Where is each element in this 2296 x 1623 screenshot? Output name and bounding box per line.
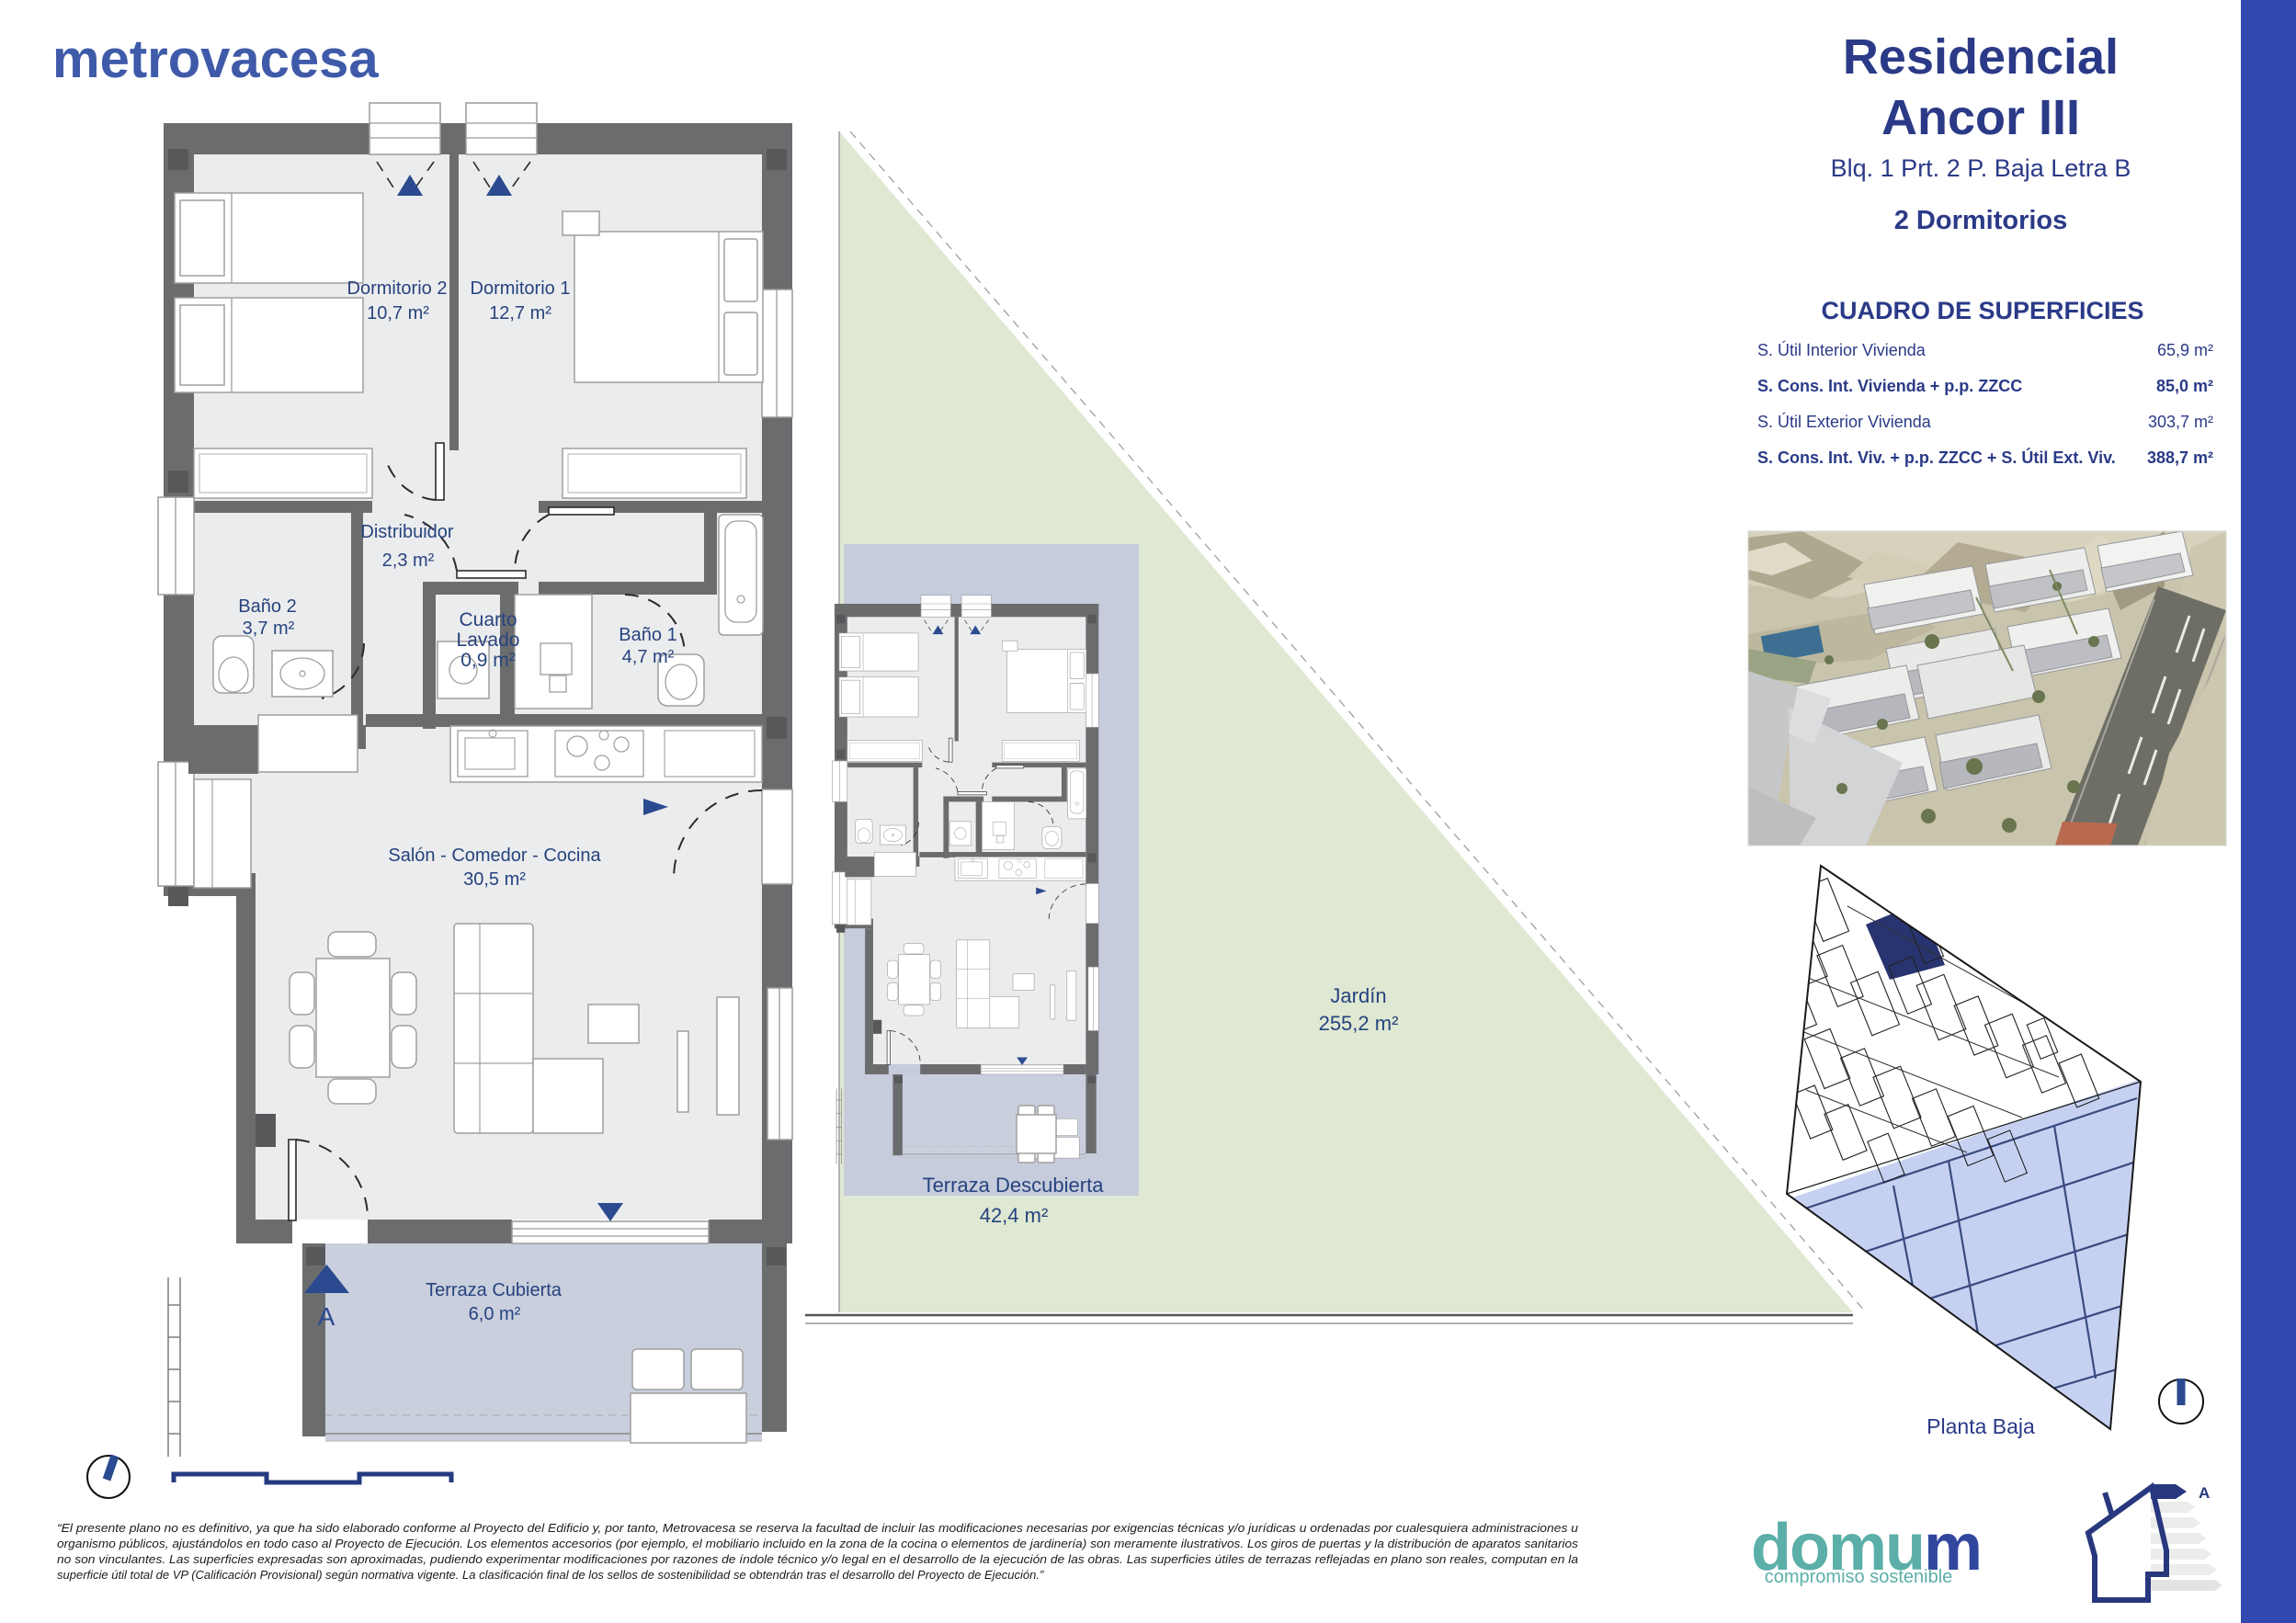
svg-text:A: A	[318, 1302, 335, 1331]
svg-text:Ancor III: Ancor III	[1881, 90, 2080, 145]
svg-text:Distribuidor: Distribuidor	[360, 522, 453, 542]
svg-text:organismo públicos, ajustándol: organismo públicos, ajustándolos en todo…	[57, 1537, 1579, 1550]
svg-text:30,5 m²: 30,5 m²	[463, 869, 526, 890]
svg-text:Terraza Descubierta: Terraza Descubierta	[923, 1174, 1105, 1197]
svg-text:no son vinculantes. Las superf: no son vinculantes. Las superficies expr…	[57, 1552, 1578, 1566]
svg-text:4,7 m²: 4,7 m²	[622, 647, 675, 667]
svg-text:255,2 m²: 255,2 m²	[1319, 1012, 1399, 1035]
svg-text:65,9 m²: 65,9 m²	[2157, 341, 2213, 359]
svg-text:303,7 m²: 303,7 m²	[2148, 413, 2213, 431]
svg-text:Cuarto: Cuarto	[459, 609, 517, 630]
svg-text:compromiso sostenible: compromiso sostenible	[1765, 1567, 1953, 1587]
svg-text:Salón - Comedor - Cocina: Salón - Comedor - Cocina	[388, 846, 601, 866]
svg-text:388,7 m²: 388,7 m²	[2147, 448, 2213, 467]
svg-text:S. Útil Exterior Vivienda: S. Útil Exterior Vivienda	[1757, 412, 1932, 431]
svg-text:2 Dormitorios: 2 Dormitorios	[1894, 206, 2068, 235]
svg-text:CUADRO DE SUPERFICIES: CUADRO DE SUPERFICIES	[1821, 297, 2143, 324]
svg-text:Baño 1: Baño 1	[619, 625, 676, 645]
svg-text:A: A	[2199, 1484, 2210, 1502]
svg-text:Dormitorio 1: Dormitorio 1	[471, 278, 571, 299]
svg-text:Dormitorio 2: Dormitorio 2	[347, 278, 448, 299]
svg-text:“El presente plano no es defin: “El presente plano no es definitivo, ya …	[57, 1521, 1578, 1535]
svg-text:85,0 m²: 85,0 m²	[2156, 377, 2213, 395]
svg-text:Terraza Cubierta: Terraza Cubierta	[426, 1280, 563, 1300]
svg-text:Residencial: Residencial	[1843, 29, 2119, 85]
svg-text:6,0 m²: 6,0 m²	[469, 1304, 521, 1324]
svg-text:Jardín: Jardín	[1330, 984, 1386, 1007]
svg-text:superficie útil total de VP (C: superficie útil total de VP (Calificació…	[57, 1568, 1044, 1582]
svg-text:42,4 m²: 42,4 m²	[980, 1204, 1049, 1227]
svg-text:S. Cons. Int. Vivienda + p.p.: S. Cons. Int. Vivienda + p.p. ZZCC	[1757, 377, 2022, 395]
svg-text:Baño 2: Baño 2	[238, 596, 296, 617]
svg-text:12,7 m²: 12,7 m²	[489, 303, 551, 323]
svg-text:10,7 m²: 10,7 m²	[367, 303, 429, 323]
svg-text:Blq. 1 Prt. 2 P. Baja Letra B: Blq. 1 Prt. 2 P. Baja Letra B	[1831, 154, 2131, 182]
svg-text:3,7 m²: 3,7 m²	[243, 619, 295, 639]
svg-text:S. Útil Interior Vivienda: S. Útil Interior Vivienda	[1757, 340, 1927, 359]
svg-text:S. Cons. Int. Viv. + p.p. ZZCC: S. Cons. Int. Viv. + p.p. ZZCC + S. Útil…	[1757, 448, 2116, 467]
svg-text:Planta Baja: Planta Baja	[1927, 1414, 2035, 1438]
svg-text:2,3 m²: 2,3 m²	[382, 550, 435, 571]
svg-text:0,9 m²: 0,9 m²	[460, 650, 516, 671]
svg-text:metrovacesa: metrovacesa	[52, 29, 379, 89]
svg-text:Lavado: Lavado	[457, 630, 520, 651]
